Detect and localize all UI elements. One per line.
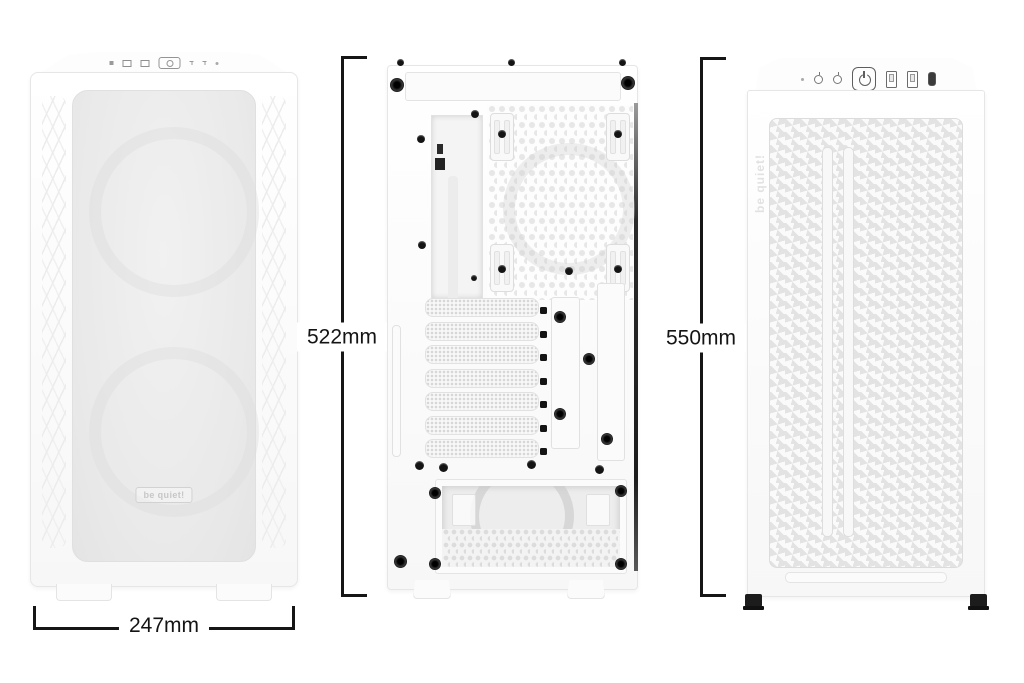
thumbscrew (394, 555, 407, 568)
mesh-io-row (801, 67, 936, 91)
dimension-tick (700, 57, 726, 60)
io-inner-bracket (448, 176, 458, 306)
pci-screw (540, 401, 547, 408)
width-dimension: 247mm (33, 606, 295, 630)
case-foot (970, 594, 987, 607)
screw (417, 135, 425, 143)
rear-view-case (387, 55, 638, 601)
psu-strut (452, 494, 476, 526)
screw (471, 110, 479, 118)
thumbscrew (621, 76, 635, 90)
front-height-dimension-label: 550mm (656, 323, 746, 352)
screw (471, 275, 477, 281)
thumbscrew (583, 353, 595, 365)
case-foot (56, 584, 112, 601)
pc-case-dimensions-diagram: be quiet! 247mm 522mm (0, 0, 1024, 683)
psu-floor-mesh (442, 529, 620, 567)
thumbscrew (554, 311, 566, 323)
pci-screw (540, 331, 547, 338)
pci-screw (540, 448, 547, 455)
audio-jack-icon (833, 75, 842, 84)
audio-jack-icon (814, 75, 823, 84)
case-foot (413, 580, 451, 599)
usb-c-icon (928, 72, 936, 86)
power-icon (159, 57, 181, 69)
fan-mount-bracket (490, 113, 514, 161)
thumbscrew (615, 485, 627, 497)
screw (619, 59, 626, 66)
usb-a-icon (123, 60, 132, 67)
thumbscrew (429, 558, 441, 570)
thumbscrew (615, 558, 627, 570)
thumbscrew (390, 78, 404, 92)
pci-screw (540, 378, 547, 385)
psu-bay-recess (435, 479, 627, 574)
usb-a-icon (907, 71, 918, 88)
pci-screw (540, 425, 547, 432)
rear-fan-mesh (487, 105, 633, 300)
power-icon (852, 67, 876, 91)
usb-a-icon (141, 60, 150, 67)
pci-slot (425, 392, 539, 411)
fan-mount-bracket (490, 244, 514, 292)
front-mesh-view-case: be quiet! (747, 58, 985, 610)
cable-clip (435, 158, 445, 170)
screw (439, 463, 448, 472)
screw (595, 465, 604, 474)
screw (397, 59, 404, 66)
pci-slot (425, 322, 539, 341)
mesh-slot-strip (843, 147, 854, 537)
rear-side-edge (634, 103, 638, 571)
mesh-slot-strip (822, 147, 833, 537)
screw (527, 460, 536, 469)
led-icon (216, 62, 219, 65)
screw (508, 59, 515, 66)
bottom-trim-handle (785, 572, 947, 583)
pci-slot (425, 439, 539, 458)
case-foot (745, 594, 762, 607)
thumbscrew (554, 408, 566, 420)
case-foot (567, 580, 605, 599)
screw (565, 267, 573, 275)
fan-mount-bracket (606, 113, 630, 161)
triangular-mesh-panel (769, 118, 963, 568)
pci-slot (425, 345, 539, 364)
psu-bay-opening (442, 486, 620, 567)
screw (418, 241, 426, 249)
fan-outline (89, 127, 259, 297)
front-view-case: be quiet! (30, 52, 298, 602)
be-quiet-side-logo: be quiet! (753, 154, 767, 213)
rear-height-dimension-label: 522mm (297, 323, 387, 352)
usb-a-icon (886, 71, 897, 88)
pci-screw (540, 307, 547, 314)
usb-c-icon (110, 61, 114, 65)
thumbscrew (601, 433, 613, 445)
dimension-tick (341, 594, 367, 597)
case-foot (216, 584, 272, 601)
pci-slot (425, 416, 539, 435)
front-mesh-panel: be quiet! (72, 90, 256, 562)
cable-clip (437, 144, 443, 154)
pci-slot (425, 298, 539, 317)
screw (415, 461, 424, 470)
front-right-rail (262, 96, 286, 548)
audio-jack-icon (190, 61, 194, 65)
front-left-rail (42, 96, 66, 548)
pci-screw (540, 354, 547, 361)
rear-top-recess (405, 72, 621, 101)
width-dimension-label: 247mm (119, 611, 209, 640)
pci-slot (425, 369, 539, 388)
audio-jack-icon (203, 61, 207, 65)
front-height-dimension: 550mm (700, 57, 726, 597)
dimension-tick (341, 56, 367, 59)
rear-height-dimension: 522mm (341, 56, 367, 597)
dimension-tick (700, 594, 726, 597)
led-icon (801, 78, 804, 81)
psu-strut (586, 494, 610, 526)
side-vent-strip (392, 325, 401, 457)
io-shield-opening (431, 115, 483, 299)
be-quiet-logo: be quiet! (135, 487, 192, 503)
thumbscrew (429, 487, 441, 499)
front-io-row (110, 57, 219, 69)
